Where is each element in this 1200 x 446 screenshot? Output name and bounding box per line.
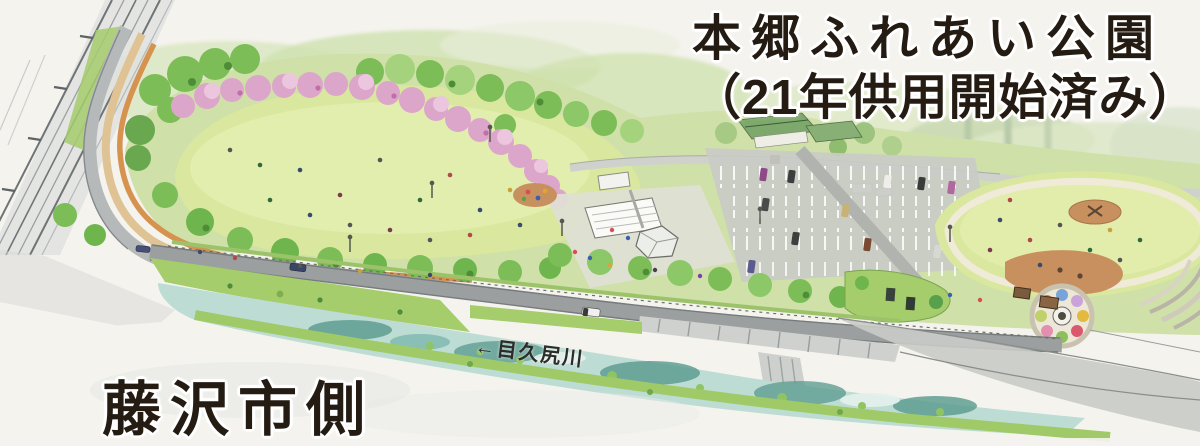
kiosk: [1039, 296, 1058, 309]
kiosk: [1013, 287, 1030, 299]
fujisawa-side-label: 藤沢市側: [102, 362, 374, 446]
park-title-line1: 本郷ふれあい公園: [692, 10, 1199, 69]
park-illustration-page: 本郷ふれあい公園 （21年供用開始済み） 藤沢市側 ←目久尻川: [0, 0, 1200, 446]
park-title-line2: （21年供用開始済み）: [692, 69, 1199, 128]
east-lawn: [935, 171, 1200, 298]
park-title: 本郷ふれあい公園 （21年供用開始済み）: [692, 10, 1199, 128]
small-playground: [513, 183, 557, 207]
